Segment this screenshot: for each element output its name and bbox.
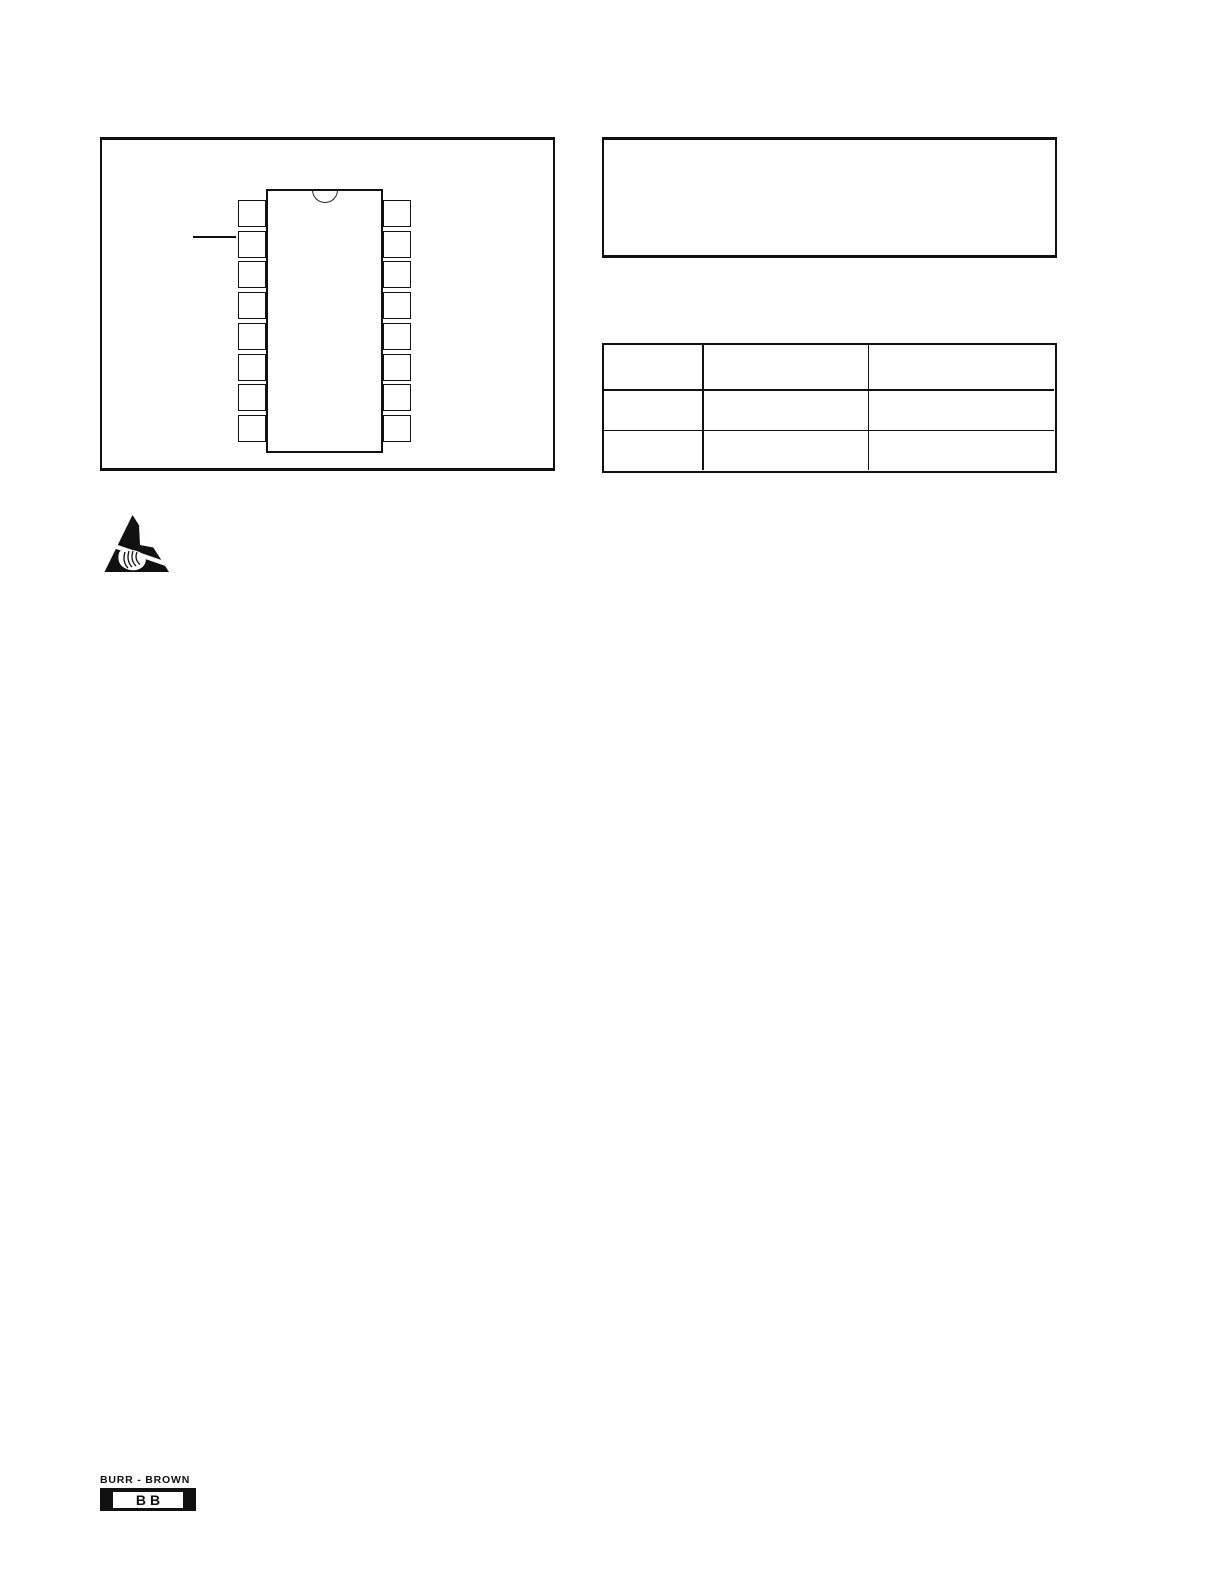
dip-pin-left-2 [238, 231, 266, 258]
esd-finger-wedge [139, 525, 154, 548]
dip-pin-right-3 [383, 261, 411, 288]
table-cell-r3c2 [704, 431, 869, 470]
table-cell-r2c2 [704, 391, 869, 431]
dip-pin-right-8 [383, 415, 411, 442]
dip-pin-left-3 [238, 261, 266, 288]
dip-pin-right-5 [383, 323, 411, 350]
logo-monogram: BB [113, 1492, 183, 1508]
pin-configuration-panel [100, 137, 555, 471]
dip-pin-left-4 [238, 292, 266, 319]
info-panel [602, 137, 1057, 258]
table-cell-r1c2 [704, 345, 869, 391]
pin-pointer-line [193, 236, 236, 238]
dip-pin-right-2 [383, 231, 411, 258]
logo-box: BB [100, 1488, 196, 1511]
dip-pin-right-6 [383, 354, 411, 381]
dip-package-body [266, 189, 383, 453]
dip-pin-left-1 [238, 200, 266, 227]
table-cell-r1c3 [869, 345, 1054, 391]
dip-package [102, 140, 553, 468]
dip-pin-right-1 [383, 200, 411, 227]
esd-warning-icon [104, 511, 171, 573]
brand-name: BURR - BROWN [100, 1474, 200, 1486]
table-cell-r2c3 [869, 391, 1054, 431]
ordering-table [602, 343, 1057, 473]
dip-pin-left-7 [238, 384, 266, 411]
dip-notch-icon [312, 190, 338, 203]
table-cell-r1c1 [604, 345, 704, 391]
page-canvas: BURR - BROWN BB [0, 0, 1224, 1584]
dip-pin-left-8 [238, 415, 266, 442]
dip-pin-left-6 [238, 354, 266, 381]
dip-pin-left-5 [238, 323, 266, 350]
table-cell-r3c3 [869, 431, 1054, 470]
dip-pin-right-4 [383, 292, 411, 319]
table-cell-r2c1 [604, 391, 704, 431]
table-cell-r3c1 [604, 431, 704, 470]
dip-pin-right-7 [383, 384, 411, 411]
